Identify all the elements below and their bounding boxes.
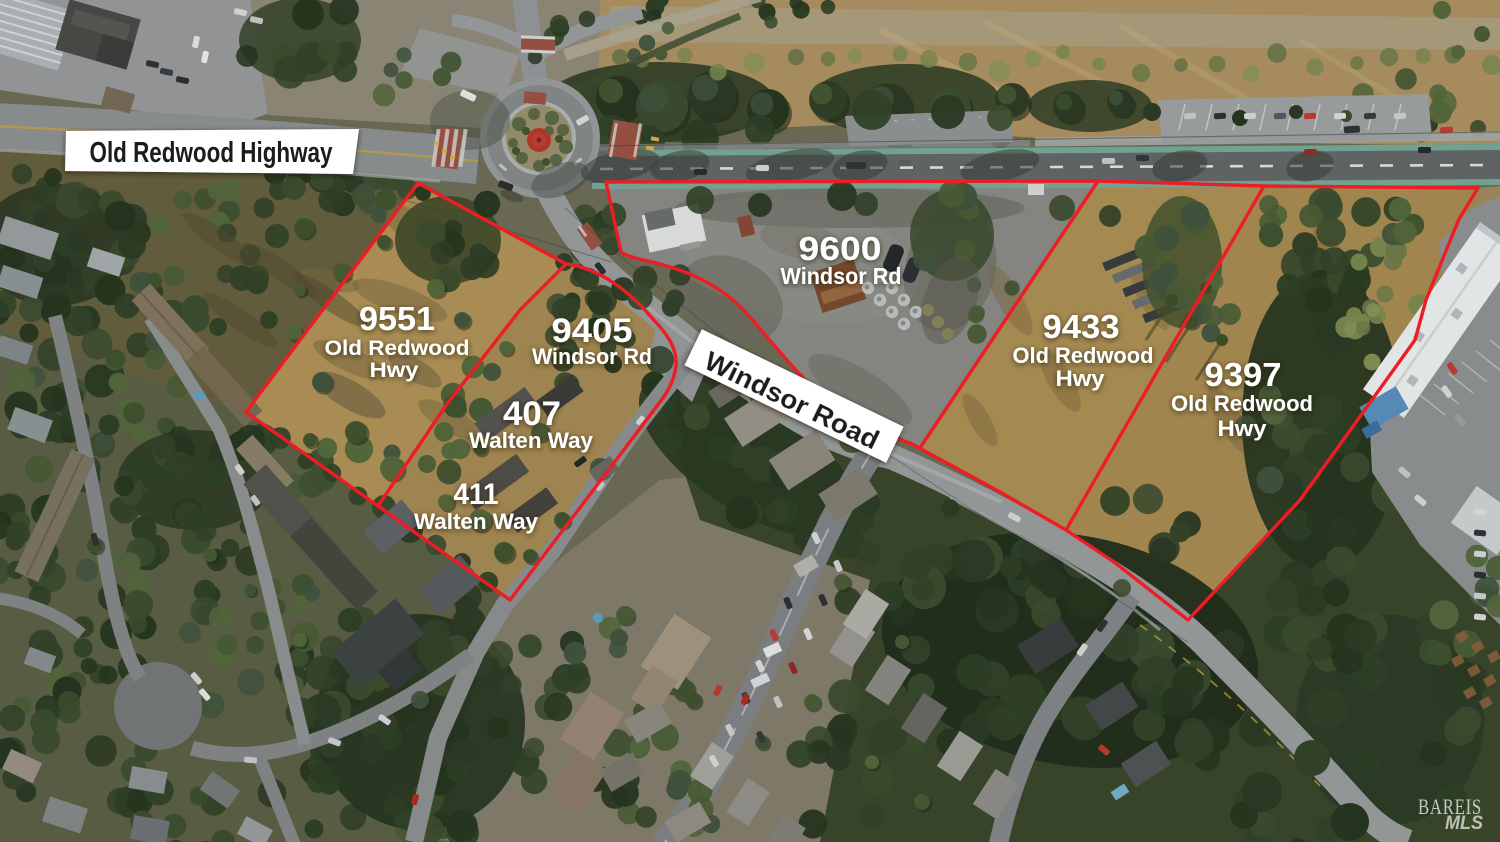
svg-text:9397: 9397 [1205, 356, 1282, 393]
svg-text:9551: 9551 [359, 300, 435, 337]
svg-text:Walten Way: Walten Way [469, 428, 593, 453]
svg-text:Windsor Rd: Windsor Rd [532, 344, 652, 369]
svg-text:Old Redwood: Old Redwood [1171, 391, 1313, 416]
svg-text:Windsor Rd: Windsor Rd [781, 263, 902, 289]
svg-text:MLS: MLS [1445, 813, 1483, 834]
svg-text:Hwy: Hwy [1218, 416, 1268, 441]
svg-text:Hwy: Hwy [1056, 366, 1106, 391]
svg-text:9433: 9433 [1043, 308, 1120, 345]
svg-text:Old Redwood Highway: Old Redwood Highway [90, 137, 333, 169]
svg-text:Old Redwood: Old Redwood [325, 336, 470, 360]
svg-text:Old Redwood: Old Redwood [1013, 343, 1154, 368]
svg-text:Hwy: Hwy [370, 358, 419, 382]
svg-text:9600: 9600 [799, 230, 882, 267]
svg-text:Walten Way: Walten Way [414, 509, 538, 534]
svg-text:411: 411 [454, 478, 499, 511]
